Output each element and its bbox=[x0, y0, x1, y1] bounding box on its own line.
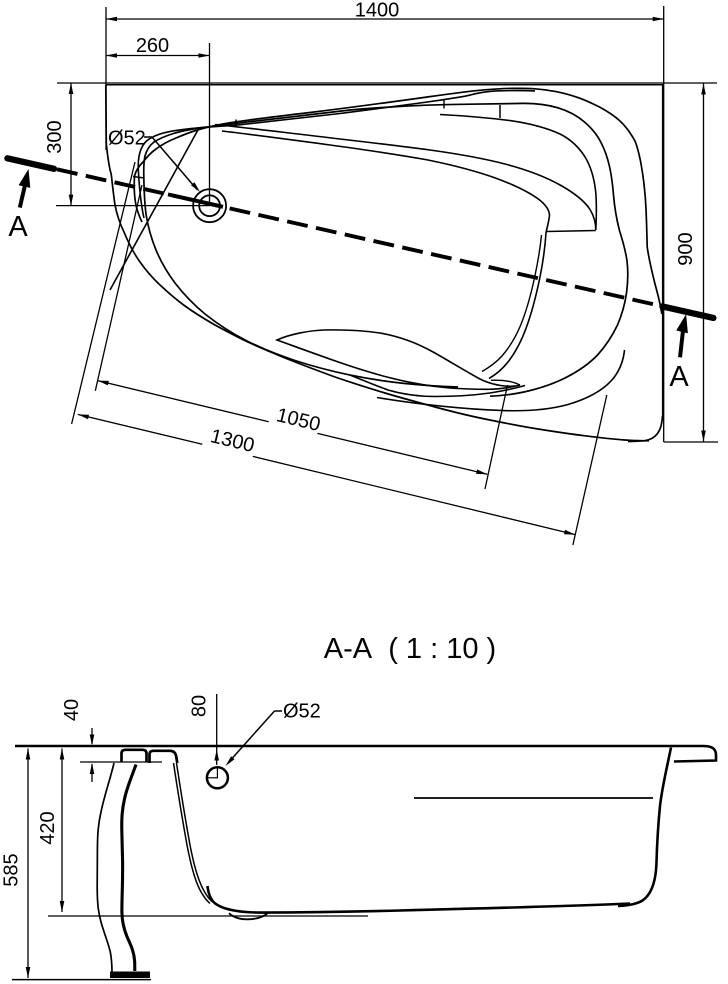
svg-text:80: 80 bbox=[189, 695, 211, 717]
svg-text:1400: 1400 bbox=[355, 0, 400, 22]
svg-text:Ø52: Ø52 bbox=[283, 701, 321, 723]
svg-text:900: 900 bbox=[675, 232, 697, 265]
svg-text:585: 585 bbox=[1, 853, 23, 886]
svg-text:A: A bbox=[669, 361, 689, 393]
svg-text:260: 260 bbox=[136, 35, 169, 57]
svg-text:A: A bbox=[8, 211, 28, 243]
svg-text:A-A ( 1 : 10 ): A-A ( 1 : 10 ) bbox=[324, 633, 496, 665]
svg-text:300: 300 bbox=[44, 120, 66, 153]
svg-text:Ø52: Ø52 bbox=[108, 128, 146, 150]
svg-text:40: 40 bbox=[61, 699, 83, 721]
svg-text:420: 420 bbox=[37, 811, 59, 844]
